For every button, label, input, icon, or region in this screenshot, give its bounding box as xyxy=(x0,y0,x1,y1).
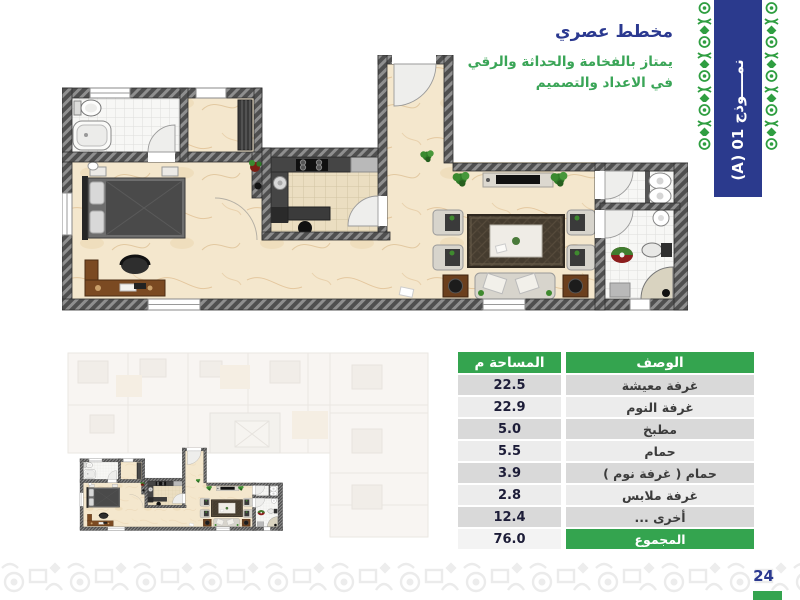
table-row: حمام 5.5 xyxy=(458,441,754,461)
area-table: الوصف المساحة م غرفة معيشة 22.5 غرفة الن… xyxy=(458,352,754,551)
table-total-row: المجموع 76.0 xyxy=(458,529,754,549)
room-label: حمام xyxy=(566,441,754,461)
ornament-right-column xyxy=(762,0,781,153)
ornament-left-column xyxy=(695,0,714,153)
page-title: مخطط عصري xyxy=(373,22,673,42)
room-area: 5.5 xyxy=(458,441,561,461)
table-row: غرفة ملابس 2.8 xyxy=(458,485,754,505)
room-label: غرفة ملابس xyxy=(566,485,754,505)
table-row: غرفة معيشة 22.5 xyxy=(458,375,754,395)
model-banner-label: نمــــوذج 01 (A) xyxy=(729,59,747,180)
brochure-page: مخطط عصري يمتاز بالفخامة والحداثة والرقي… xyxy=(0,0,800,600)
room-label: غرفة النوم xyxy=(566,397,754,417)
header-description: الوصف xyxy=(566,352,754,373)
room-area: 2.8 xyxy=(458,485,561,505)
total-area: 76.0 xyxy=(458,529,561,549)
room-label: غرفة معيشة xyxy=(566,375,754,395)
subtitle-line-2: في الاعداد والتصميم xyxy=(373,73,673,94)
table-body: غرفة معيشة 22.5 غرفة النوم 22.9 مطبخ 5.0… xyxy=(458,375,754,549)
room-area: 22.9 xyxy=(458,397,561,417)
table-row: مطبخ 5.0 xyxy=(458,419,754,439)
main-floor-plan xyxy=(62,55,688,315)
total-label: المجموع xyxy=(566,529,754,549)
table-row: غرفة النوم 22.9 xyxy=(458,397,754,417)
page-number-accent-bar xyxy=(753,591,782,600)
highlighted-unit-plan xyxy=(80,448,283,531)
room-label: أخرى ... xyxy=(566,507,754,527)
table-row: أخرى ... 12.4 xyxy=(458,507,754,527)
room-area: 12.4 xyxy=(458,507,561,527)
page-number: 24 xyxy=(753,567,774,585)
room-area: 5.0 xyxy=(458,419,561,439)
building-overview-plan xyxy=(60,345,460,560)
room-area: 22.5 xyxy=(458,375,561,395)
room-label: مطبخ xyxy=(566,419,754,439)
bottom-ornament-band xyxy=(0,558,800,600)
model-banner: نمــــوذج 01 (A) xyxy=(714,0,762,197)
table-header-row: الوصف المساحة م xyxy=(458,352,754,373)
header-area: المساحة م xyxy=(458,352,561,373)
table-row: حمام ( غرفة نوم ) 3.9 xyxy=(458,463,754,483)
room-label: حمام ( غرفة نوم ) xyxy=(566,463,754,483)
room-area: 3.9 xyxy=(458,463,561,483)
subtitle-line-1: يمتاز بالفخامة والحداثة والرقي xyxy=(373,52,673,73)
header-text-block: مخطط عصري يمتاز بالفخامة والحداثة والرقي… xyxy=(373,22,673,94)
